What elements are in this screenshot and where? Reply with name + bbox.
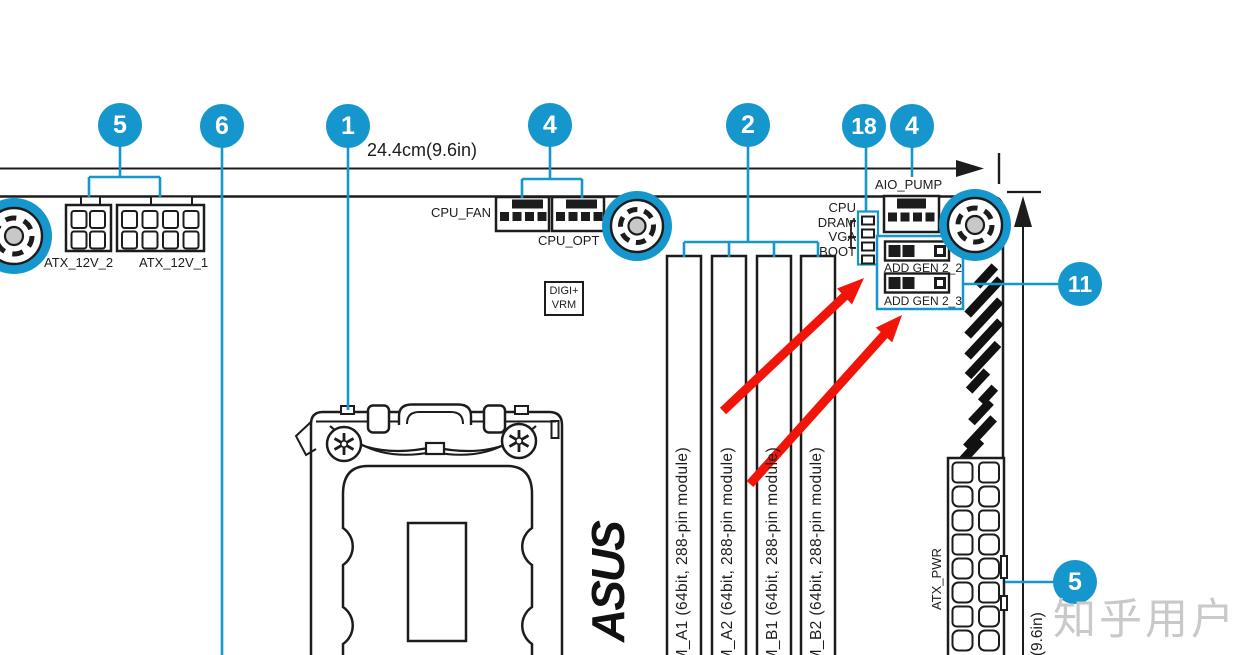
callout-2: 2 [726, 103, 770, 147]
aio-pump-label: AIO_PUMP [875, 178, 942, 191]
qled-boot-label: BOOT [798, 245, 856, 258]
callout-1: 1 [326, 104, 370, 148]
add-gen-2-3-label: ADD GEN 2_3 [884, 295, 962, 307]
callout-11: 11 [1058, 262, 1102, 306]
atx-pwr-label: ATX_PWR [930, 548, 943, 610]
atx-12v-1-label: ATX_12V_1 [139, 256, 208, 269]
atx-12v-2-connector [66, 197, 111, 252]
vertical-dimension-label: 24.4cm(9.6in) [1030, 612, 1046, 655]
digi-label: DIGI+ [546, 284, 582, 298]
dimm-a2-label: DIMM_A2 (64bit, 288-pin module) [720, 447, 736, 655]
vertical-dimension-line [1007, 192, 1041, 655]
cpu-fan-label: CPU_FAN [431, 206, 491, 219]
mounting-hole-center [602, 191, 672, 261]
cpu-opt-header [552, 197, 604, 231]
dimm-b2-label: DIMM_B2 (64bit, 288-pin module) [809, 447, 825, 655]
tuf-logo-stripes [960, 263, 1004, 462]
horizontal-dimension-line [0, 153, 999, 184]
digi-vrm-label: DIGI+ VRM [544, 281, 584, 316]
cpu-opt-label: CPU_OPT [538, 234, 599, 247]
atx-12v-1-connector [117, 197, 204, 252]
qled-dram-label: DRAM [798, 216, 856, 229]
asus-logo: ASUS [585, 522, 631, 642]
dimm-b1-label: DIMM_B1 (64bit, 288-pin module) [765, 447, 781, 655]
atx-pwr-connector [948, 458, 1007, 655]
horizontal-dimension-label: 24.4cm(9.6in) [367, 141, 477, 159]
callout-5-left: 5 [98, 103, 142, 147]
callout-4-fan: 4 [528, 103, 572, 147]
motherboard-layout-diagram: 24.4cm(9.6in) ATX_12V_2 ATX_12V_1 CPU_FA… [0, 0, 1247, 655]
callout-4-pump: 4 [890, 104, 934, 148]
qled-vga-label: VGA [798, 230, 856, 243]
zhihu-watermark: 知乎用户 [1053, 585, 1237, 647]
cpu-fan-header [496, 197, 549, 231]
vrm-label: VRM [546, 298, 582, 312]
aio-pump-header [884, 196, 939, 232]
callout-18: 18 [842, 104, 886, 148]
dimm-a1-label: DIMM_A1 (64bit, 288-pin module) [675, 447, 691, 655]
callout-6: 6 [200, 104, 244, 148]
atx-12v-2-label: ATX_12V_2 [44, 256, 113, 269]
add-gen-2-2-label: ADD GEN 2_2 [884, 262, 962, 274]
qled-cpu-label: CPU [798, 201, 856, 214]
cpu-socket [296, 405, 562, 655]
mounting-hole-right [939, 189, 1011, 261]
